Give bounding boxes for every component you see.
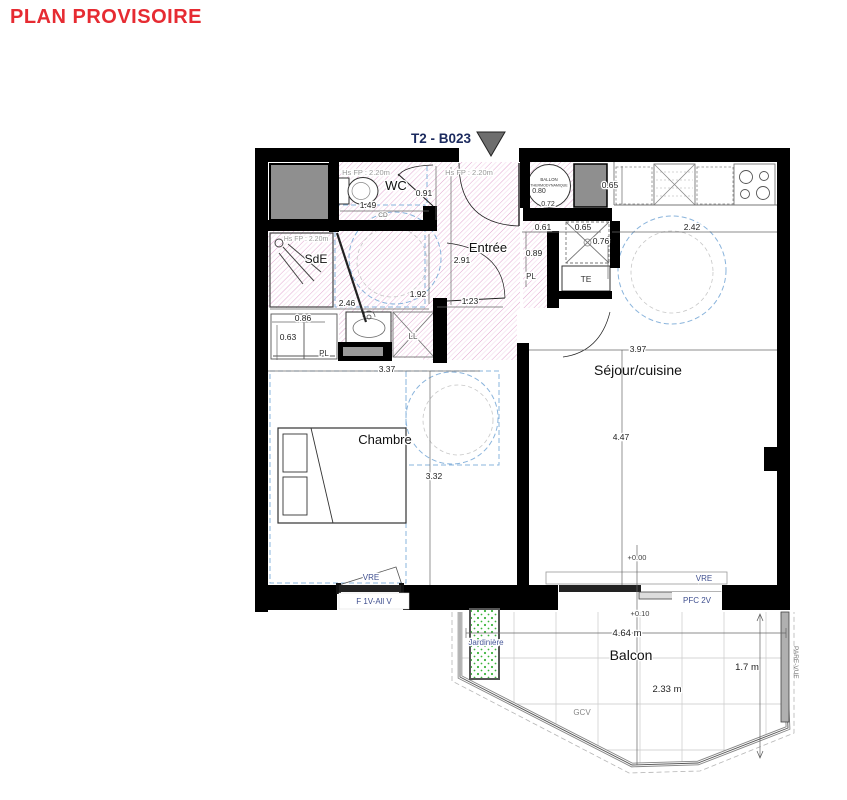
height-note-sde: Hs FP : 2.20m: [284, 236, 329, 243]
svg-text:1.49: 1.49: [360, 200, 377, 210]
svg-text:0.65: 0.65: [602, 180, 619, 190]
washbasin-fixture: [346, 311, 391, 343]
svg-text:0.65: 0.65: [575, 222, 592, 232]
duct-shaft-left: [270, 164, 329, 220]
floor-plan-svg: T2 - B023 WC SdE Entrée Séjour/cuisine C…: [0, 0, 847, 800]
water-heater-label-1: BALLON: [540, 177, 557, 182]
walls: [255, 148, 790, 612]
ll-label: LL: [409, 332, 418, 341]
entry-arrow-icon: [477, 132, 505, 156]
privacy-screen: [781, 612, 789, 722]
svg-text:3.97: 3.97: [630, 344, 647, 354]
svg-text:4.47: 4.47: [613, 432, 630, 442]
level-interior: +0.00: [628, 553, 647, 562]
pl-label-entree: PL: [526, 272, 536, 281]
room-label-chambre: Chambre: [358, 432, 411, 447]
jardiniere-label: Jardinière: [468, 638, 504, 647]
fenetre-chambre-label: F 1V-All V: [356, 597, 392, 606]
height-note-entree: Hs FP : 2.20m: [445, 168, 493, 177]
page-title: PLAN PROVISOIRE: [10, 6, 202, 29]
svg-text:0.80: 0.80: [532, 188, 546, 195]
svg-text:0.86: 0.86: [295, 313, 312, 323]
water-heater-label-2: THERMODYNAMIQUE: [530, 184, 568, 188]
vre-label-chambre: VRE: [363, 573, 379, 582]
svg-text:2.46: 2.46: [339, 298, 356, 308]
svg-text:0.89: 0.89: [526, 248, 543, 258]
svg-text:2.33 m: 2.33 m: [652, 684, 681, 695]
floor-plan-page: PLAN PROVISOIRE: [0, 0, 847, 800]
kitchen-counter: [614, 162, 777, 205]
svg-text:2.91: 2.91: [454, 255, 471, 265]
pare-vue-label: PARE-VUE: [792, 646, 799, 679]
cd-label: CD: [378, 212, 388, 219]
svg-text:0.61: 0.61: [535, 222, 552, 232]
unit-label: T2 - B023: [411, 131, 472, 146]
svg-text:4.64 m: 4.64 m: [612, 628, 641, 639]
svg-text:1.92: 1.92: [410, 289, 427, 299]
svg-text:0.91: 0.91: [416, 188, 433, 198]
svg-text:0.72: 0.72: [541, 201, 555, 208]
svg-text:1.23: 1.23: [462, 296, 479, 306]
room-label-balcon: Balcon: [610, 647, 653, 663]
svg-text:1.7 m: 1.7 m: [735, 662, 759, 673]
level-balcony: +0.10: [631, 609, 650, 618]
radiator: [343, 347, 383, 356]
svg-text:3.32: 3.32: [426, 471, 443, 481]
svg-text:3.37: 3.37: [379, 364, 396, 374]
room-label-wc: WC: [385, 178, 407, 193]
pfc-label-sejour: PFC 2V: [683, 596, 712, 605]
pl-label-chambre: PL: [319, 349, 329, 358]
room-label-entree: Entrée: [469, 240, 507, 255]
gcv-label: GCV: [573, 708, 591, 717]
vre-label-sejour: VRE: [696, 574, 712, 583]
te-label: TE: [581, 274, 592, 284]
room-label-sejour: Séjour/cuisine: [594, 362, 682, 378]
svg-text:0.63: 0.63: [280, 332, 297, 342]
svg-text:0.76: 0.76: [593, 236, 610, 246]
room-label-sde: SdE: [305, 252, 328, 266]
svg-text:2.42: 2.42: [684, 222, 701, 232]
height-note-wc: Hs FP : 2.20m: [342, 168, 390, 177]
